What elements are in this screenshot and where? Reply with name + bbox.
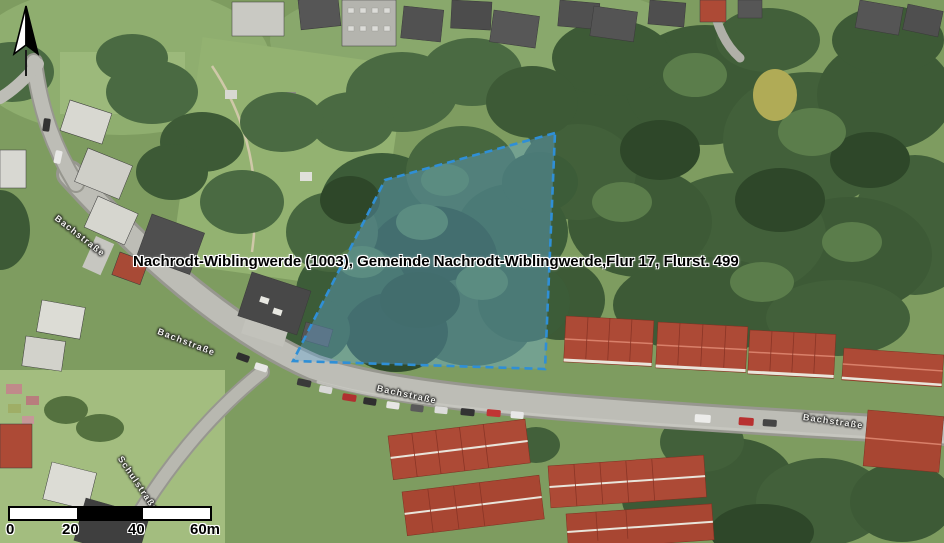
parcel-label: Nachrodt-Wiblingwerde (1003), Gemeinde N… [133,253,739,270]
aerial-map[interactable]: Nachrodt-Wiblingwerde (1003), Gemeinde N… [0,0,944,543]
scale-segment-2 [77,508,144,519]
scale-segment-3 [143,508,210,519]
north-arrow-icon [14,6,38,76]
scale-tick-20: 20 [62,521,79,538]
scale-segment-1 [10,508,77,519]
scale-bar [8,506,212,521]
scale-tick-0: 0 [6,521,14,538]
scale-tick-60: 60m [190,521,220,538]
parcel-polygon[interactable] [293,133,555,369]
scale-tick-40: 40 [128,521,145,538]
